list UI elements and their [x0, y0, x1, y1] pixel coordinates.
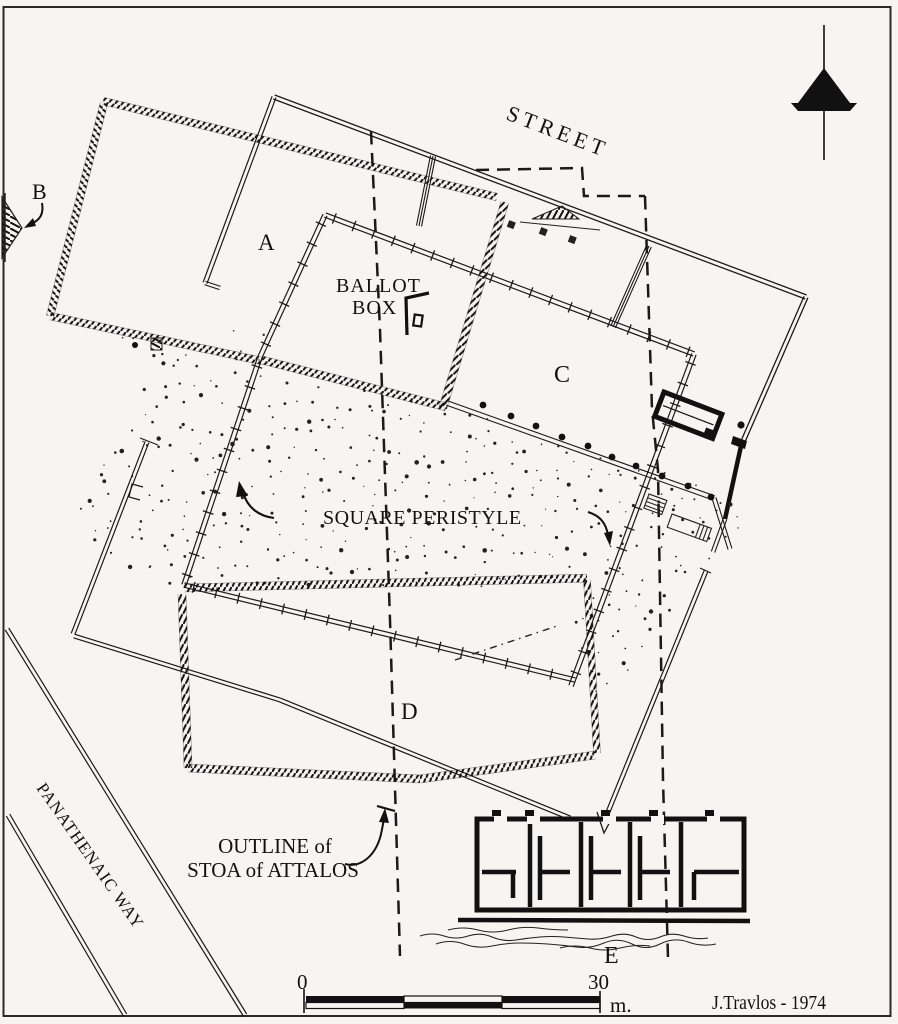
svg-text:OUTLINE of: OUTLINE of — [218, 834, 332, 858]
svg-text:SQUARE PERISTYLE: SQUARE PERISTYLE — [323, 507, 522, 529]
svg-text:30: 30 — [588, 970, 609, 994]
svg-text:STOA of ATTALOS: STOA of ATTALOS — [187, 858, 359, 882]
svg-text:BOX: BOX — [352, 297, 397, 319]
svg-text:BALLOT: BALLOT — [336, 275, 421, 297]
svg-text:D: D — [401, 699, 418, 724]
svg-text:B: B — [32, 179, 47, 204]
svg-text:C: C — [554, 362, 570, 388]
svg-text:0: 0 — [297, 970, 308, 994]
svg-text:E: E — [604, 943, 619, 969]
svg-text:STREET: STREET — [503, 100, 612, 162]
svg-text:J.Travlos - 1974: J.Travlos - 1974 — [712, 992, 826, 1014]
svg-text:m.: m. — [610, 993, 632, 1017]
svg-text:PANATHENAIC WAY: PANATHENAIC WAY — [33, 779, 148, 932]
svg-text:A: A — [258, 230, 275, 255]
